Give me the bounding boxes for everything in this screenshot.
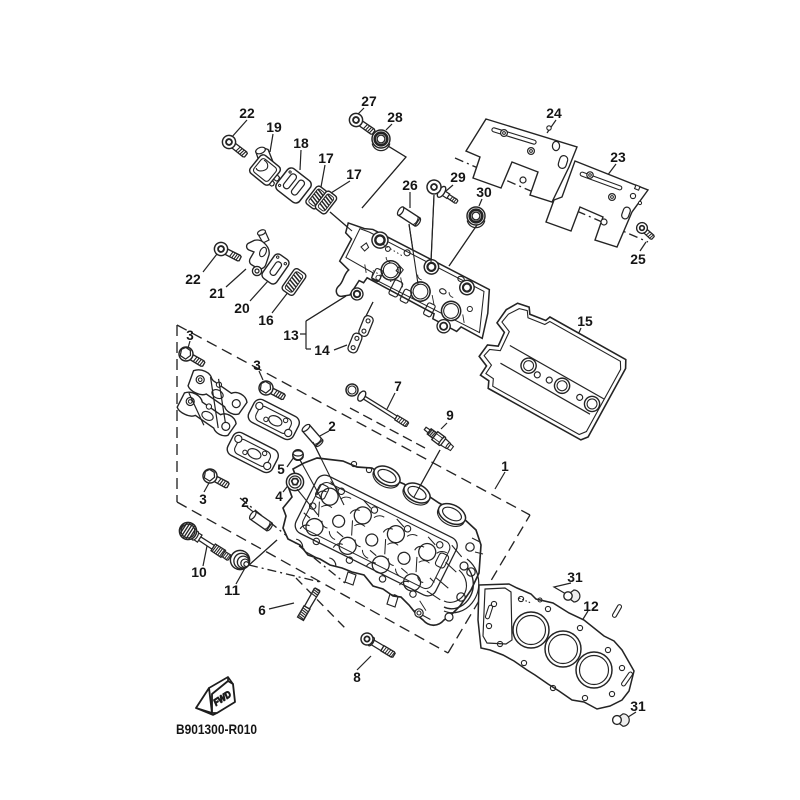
svg-text:3: 3	[199, 492, 207, 507]
svg-text:1: 1	[501, 459, 509, 474]
svg-text:31: 31	[567, 570, 583, 585]
svg-text:30: 30	[476, 185, 492, 200]
svg-text:31: 31	[630, 699, 646, 714]
svg-text:4: 4	[275, 489, 283, 504]
svg-text:23: 23	[610, 150, 626, 165]
svg-text:24: 24	[546, 106, 562, 121]
svg-text:27: 27	[361, 94, 377, 109]
svg-text:B901300-R010: B901300-R010	[176, 721, 257, 737]
svg-text:7: 7	[394, 379, 402, 394]
svg-text:26: 26	[402, 178, 418, 193]
svg-text:14: 14	[314, 343, 330, 358]
svg-text:10: 10	[191, 565, 207, 580]
svg-text:15: 15	[577, 314, 593, 329]
svg-text:25: 25	[630, 252, 646, 267]
svg-text:3: 3	[253, 358, 261, 373]
svg-text:20: 20	[234, 301, 250, 316]
svg-text:17: 17	[318, 151, 334, 166]
svg-text:28: 28	[387, 110, 403, 125]
svg-text:5: 5	[277, 462, 285, 477]
svg-text:22: 22	[185, 272, 201, 287]
svg-text:16: 16	[258, 313, 274, 328]
svg-text:9: 9	[446, 408, 454, 423]
svg-text:29: 29	[450, 170, 466, 185]
svg-text:3: 3	[186, 328, 194, 343]
svg-text:19: 19	[266, 120, 282, 135]
svg-text:11: 11	[224, 583, 241, 598]
svg-text:13: 13	[283, 328, 299, 343]
svg-text:18: 18	[293, 136, 309, 151]
svg-text:17: 17	[346, 167, 362, 182]
svg-text:2: 2	[241, 495, 249, 510]
svg-text:21: 21	[209, 286, 225, 301]
svg-text:12: 12	[583, 599, 599, 614]
svg-text:22: 22	[239, 106, 255, 121]
svg-text:6: 6	[258, 603, 266, 618]
svg-text:8: 8	[353, 670, 361, 685]
svg-text:2: 2	[328, 419, 336, 434]
